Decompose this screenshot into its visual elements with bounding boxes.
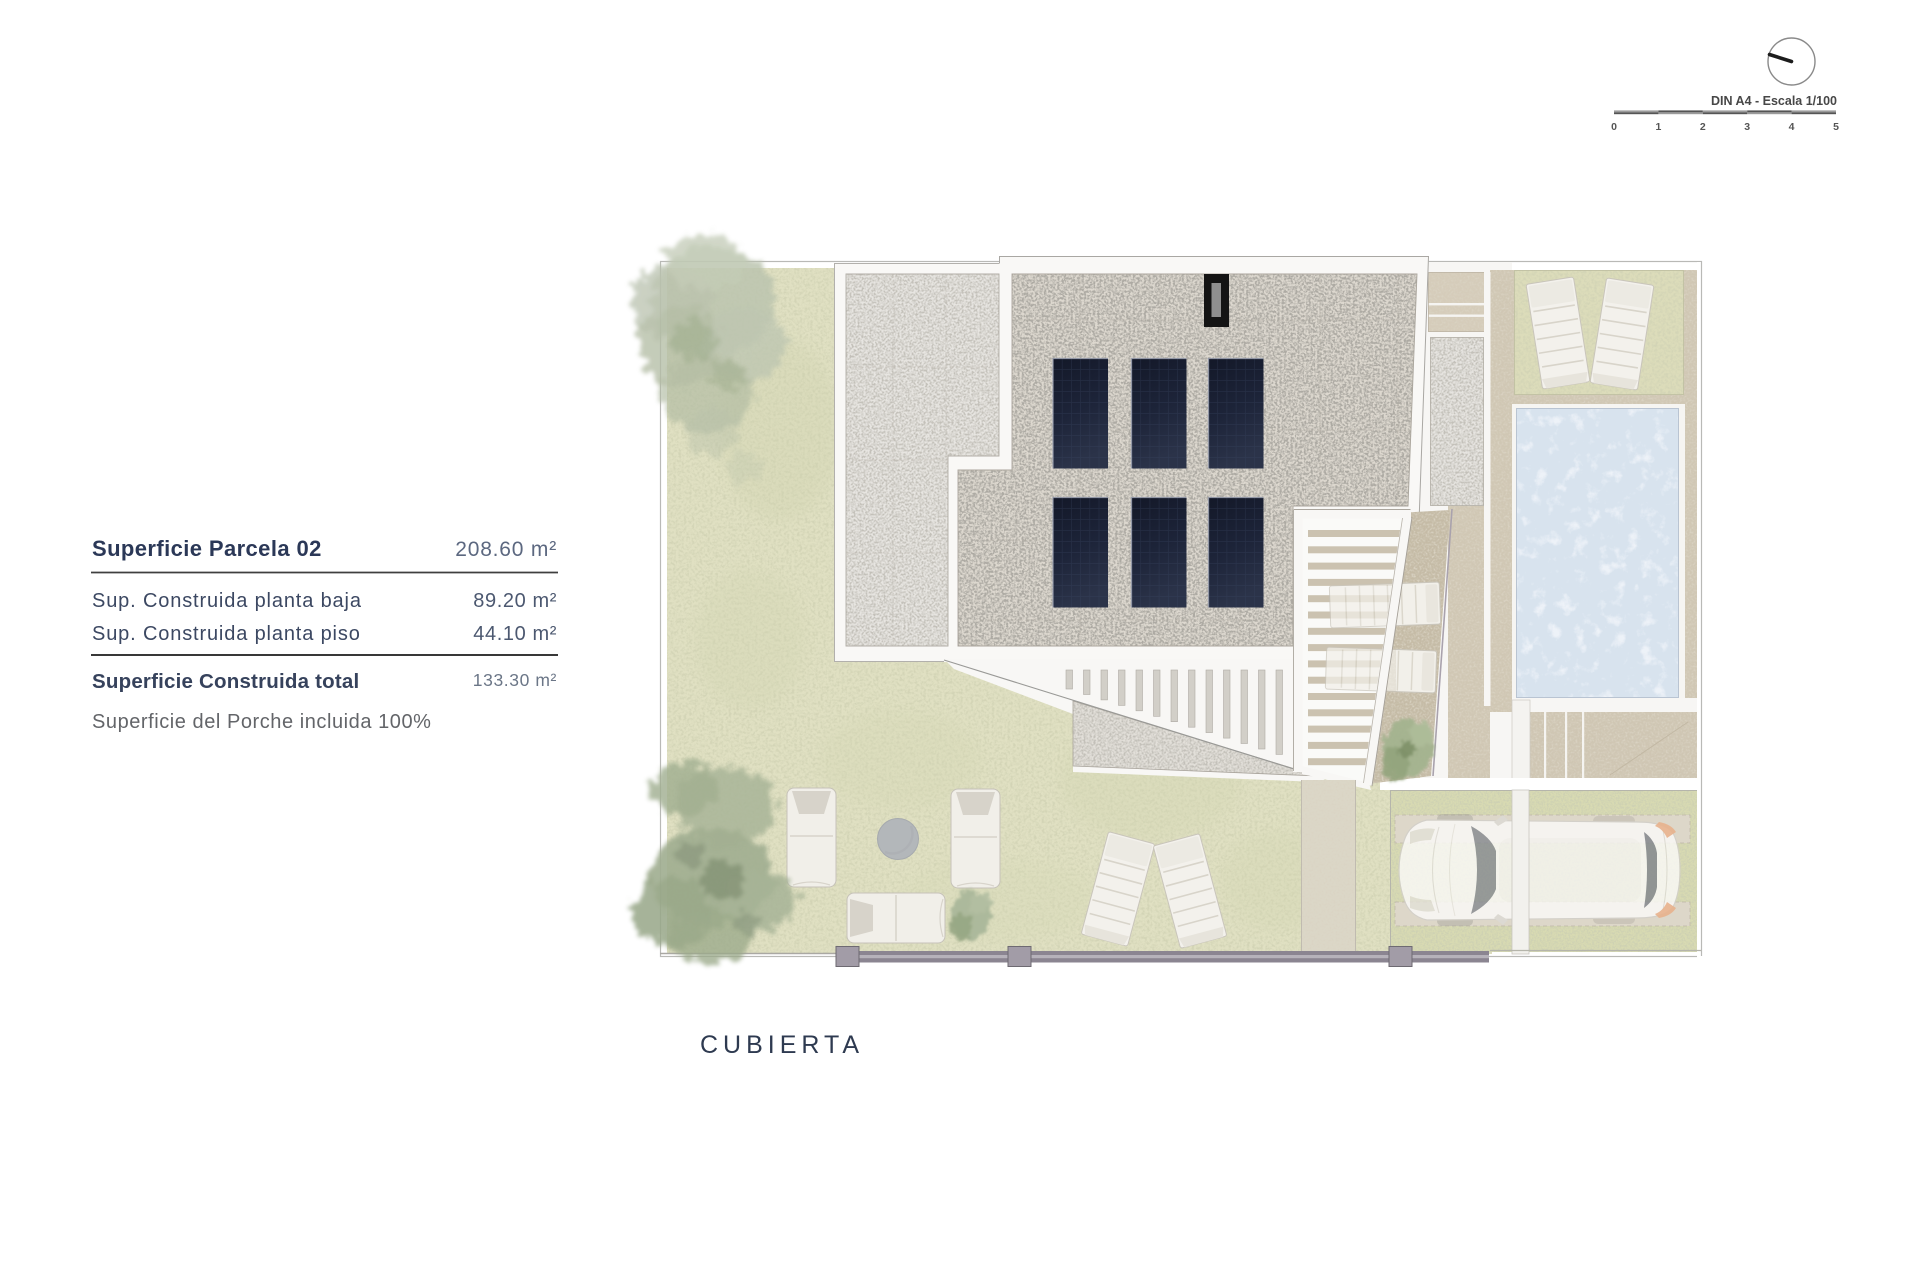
svg-text:CUBIERTA: CUBIERTA — [700, 1031, 864, 1059]
svg-text:DIN A4 - Escala 1/100: DIN A4 - Escala 1/100 — [1711, 94, 1837, 108]
svg-text:133.30 m²: 133.30 m² — [473, 670, 557, 690]
svg-text:44.10 m²: 44.10 m² — [473, 623, 557, 645]
svg-text:208.60 m²: 208.60 m² — [455, 538, 557, 561]
svg-text:1: 1 — [1655, 121, 1661, 133]
svg-text:0: 0 — [1611, 121, 1617, 133]
svg-text:Superficie del Porche incluida: Superficie del Porche incluida 100% — [92, 711, 431, 733]
svg-text:Sup. Construida planta piso: Sup. Construida planta piso — [92, 623, 361, 645]
svg-text:Superficie Parcela 02: Superficie Parcela 02 — [92, 536, 322, 561]
svg-text:5: 5 — [1833, 121, 1839, 133]
svg-text:Superficie Construida total: Superficie Construida total — [92, 670, 359, 693]
svg-text:Sup. Construida planta baja: Sup. Construida planta baja — [92, 590, 362, 612]
svg-text:3: 3 — [1744, 121, 1750, 133]
svg-text:2: 2 — [1700, 121, 1706, 133]
svg-text:4: 4 — [1789, 121, 1795, 133]
svg-text:89.20 m²: 89.20 m² — [473, 590, 557, 612]
